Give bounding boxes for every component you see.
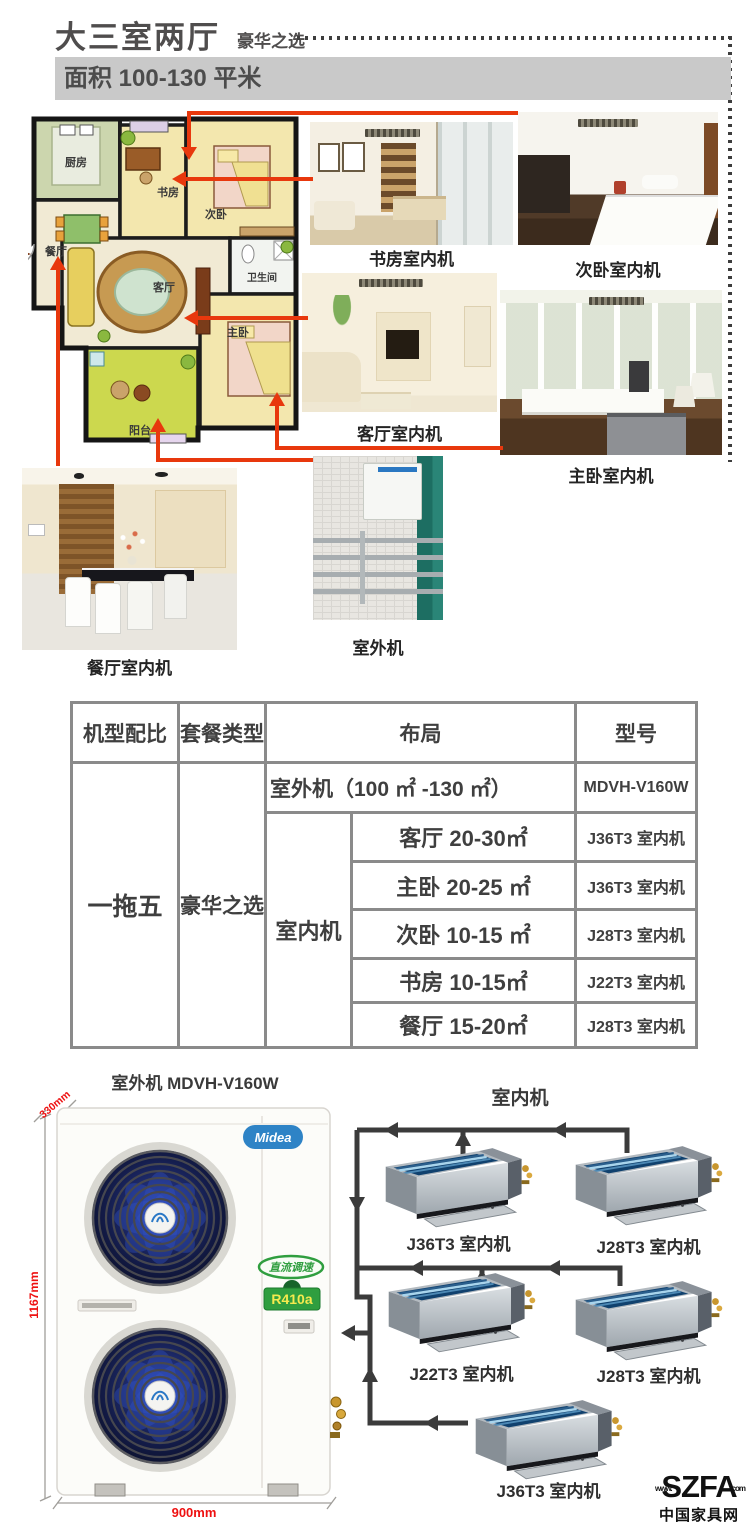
cell-model: J22T3 室内机	[576, 959, 697, 1003]
header-package: 套餐类型	[179, 703, 266, 763]
szfa-caption: 中国家具网	[653, 1504, 745, 1525]
photo-second-bedroom-indoor-unit	[518, 112, 718, 245]
photo-study-indoor-unit	[310, 122, 513, 245]
indoor-unit-2	[566, 1141, 731, 1229]
arrow-left-icon	[552, 1122, 566, 1138]
photo-label-outdoor: 室外机	[313, 634, 443, 659]
refrigerant-text: R410a	[271, 1291, 312, 1307]
cell-indoor-label: 室内机	[266, 813, 352, 1048]
photo-label-study: 书房室内机	[310, 245, 513, 270]
header-model: 型号	[576, 703, 697, 763]
outdoor-foot	[95, 1484, 125, 1496]
package-spec-table: 机型配比 套餐类型 布局 型号 一拖五 豪华之选 室外机（100 ㎡ -130 …	[70, 701, 698, 1049]
cell-model: J36T3 室内机	[576, 862, 697, 910]
photo-living-indoor-unit	[302, 273, 497, 412]
cell-config: 一拖五	[72, 763, 179, 1048]
header-layout: 布局	[266, 703, 576, 763]
floor-plan: 厨房 书房 次卧 餐厅 客厅 卫生间 主卧 阳台	[28, 110, 303, 450]
arrow-left-icon	[546, 1260, 560, 1276]
indoor-unit-5-label: J36T3 室内机	[466, 1477, 631, 1502]
table-header-row: 机型配比 套餐类型 布局 型号	[72, 703, 697, 763]
room-label-master-bedroom: 主卧	[227, 325, 249, 339]
dc-inverter-badge: 直流调速	[259, 1256, 323, 1278]
cell-package: 豪华之选	[179, 763, 266, 1048]
cell-outdoor-model: MDVH-V160W	[576, 763, 697, 813]
dc-inverter-text: 直流调速	[269, 1261, 315, 1274]
second-bedroom-ceiling-ac-grille	[578, 119, 638, 127]
page-title: 大三室两厅	[55, 12, 220, 57]
room-label-balcony: 阳台	[129, 423, 151, 437]
photo-label-second-bedroom: 次卧室内机	[518, 256, 718, 281]
cell-room: 客厅 20-30㎡	[352, 813, 576, 862]
indoor-unit-4-label: J28T3 室内机	[566, 1362, 731, 1387]
master-ceiling-ac-grille	[589, 297, 645, 305]
photo-label-master-bedroom: 主卧室内机	[500, 462, 722, 487]
midea-logo-text: Midea	[255, 1130, 292, 1145]
room-label-kitchen: 厨房	[65, 155, 87, 169]
cell-model: J36T3 室内机	[576, 813, 697, 862]
indoor-unit-2-label: J28T3 室内机	[566, 1233, 731, 1258]
table-row: 一拖五 豪华之选 室外机（100 ㎡ -130 ㎡） MDVH-V160W	[72, 763, 697, 813]
indoor-unit-1	[376, 1143, 541, 1231]
product-page: 大三室两厅 豪华之选 面积 100-130 平米	[0, 0, 750, 1539]
photo-outdoor-unit	[313, 456, 443, 620]
indoor-unit-5	[466, 1395, 631, 1483]
szfa-logo: SZFA www. .com	[653, 1472, 745, 1502]
living-ceiling-ac-grille	[359, 279, 423, 287]
midea-logo: Midea	[243, 1125, 303, 1149]
room-label-study: 书房	[157, 185, 179, 199]
room-label-bathroom: 卫生间	[247, 271, 277, 284]
arrow-up-icon	[362, 1367, 378, 1382]
page-subtitle: 豪华之选	[237, 27, 305, 52]
arrow-left-icon	[384, 1122, 398, 1138]
indoor-unit-3	[379, 1268, 544, 1356]
arrow-left-icon	[424, 1415, 438, 1431]
indoor-unit-1-label: J36T3 室内机	[376, 1230, 541, 1255]
refrigerant-pipes	[330, 1397, 346, 1438]
cell-room: 餐厅 15-20㎡	[352, 1003, 576, 1048]
cell-room: 书房 10-15㎡	[352, 959, 576, 1003]
szfa-watermark: SZFA www. .com 中国家具网	[653, 1472, 745, 1525]
indoor-unit-4	[566, 1276, 731, 1364]
photo-label-living: 客厅室内机	[302, 420, 497, 445]
dotted-line-horizontal	[297, 36, 733, 40]
dimension-width-label: 900mm	[172, 1505, 217, 1520]
szfa-logo-text: SZFA	[661, 1469, 736, 1504]
study-ceiling-ac-grille	[365, 129, 420, 136]
indoor-units-heading: 室内机	[445, 1083, 595, 1110]
szfa-www-text: www.	[655, 1474, 672, 1504]
cell-model: J28T3 室内机	[576, 1003, 697, 1048]
area-banner: 面积 100-130 平米	[55, 57, 731, 100]
photo-dining-indoor-unit	[22, 468, 237, 650]
room-label-second-bedroom: 次卧	[205, 207, 227, 221]
szfa-com-text: .com	[730, 1474, 745, 1504]
cell-room: 次卧 10-15 ㎡	[352, 910, 576, 959]
outdoor-unit-drawing: 1167mm 330mm 900mm	[28, 1088, 358, 1528]
cell-model: J28T3 室内机	[576, 910, 697, 959]
outdoor-foot	[268, 1484, 298, 1496]
cell-outdoor-layout: 室外机（100 ㎡ -130 ㎡）	[266, 763, 576, 813]
header-config: 机型配比	[72, 703, 179, 763]
cell-room: 主卧 20-25 ㎡	[352, 862, 576, 910]
room-label-living: 客厅	[152, 280, 175, 294]
outdoor-fan-top	[84, 1142, 236, 1294]
photo-label-dining: 餐厅室内机	[22, 654, 237, 679]
photo-master-bedroom-indoor-unit	[500, 290, 722, 455]
room-label-dining: 餐厅	[44, 244, 67, 258]
outdoor-fan-bottom	[84, 1320, 236, 1472]
dimension-height-label: 1167mm	[28, 1271, 41, 1318]
indoor-unit-3-label: J22T3 室内机	[379, 1360, 544, 1385]
